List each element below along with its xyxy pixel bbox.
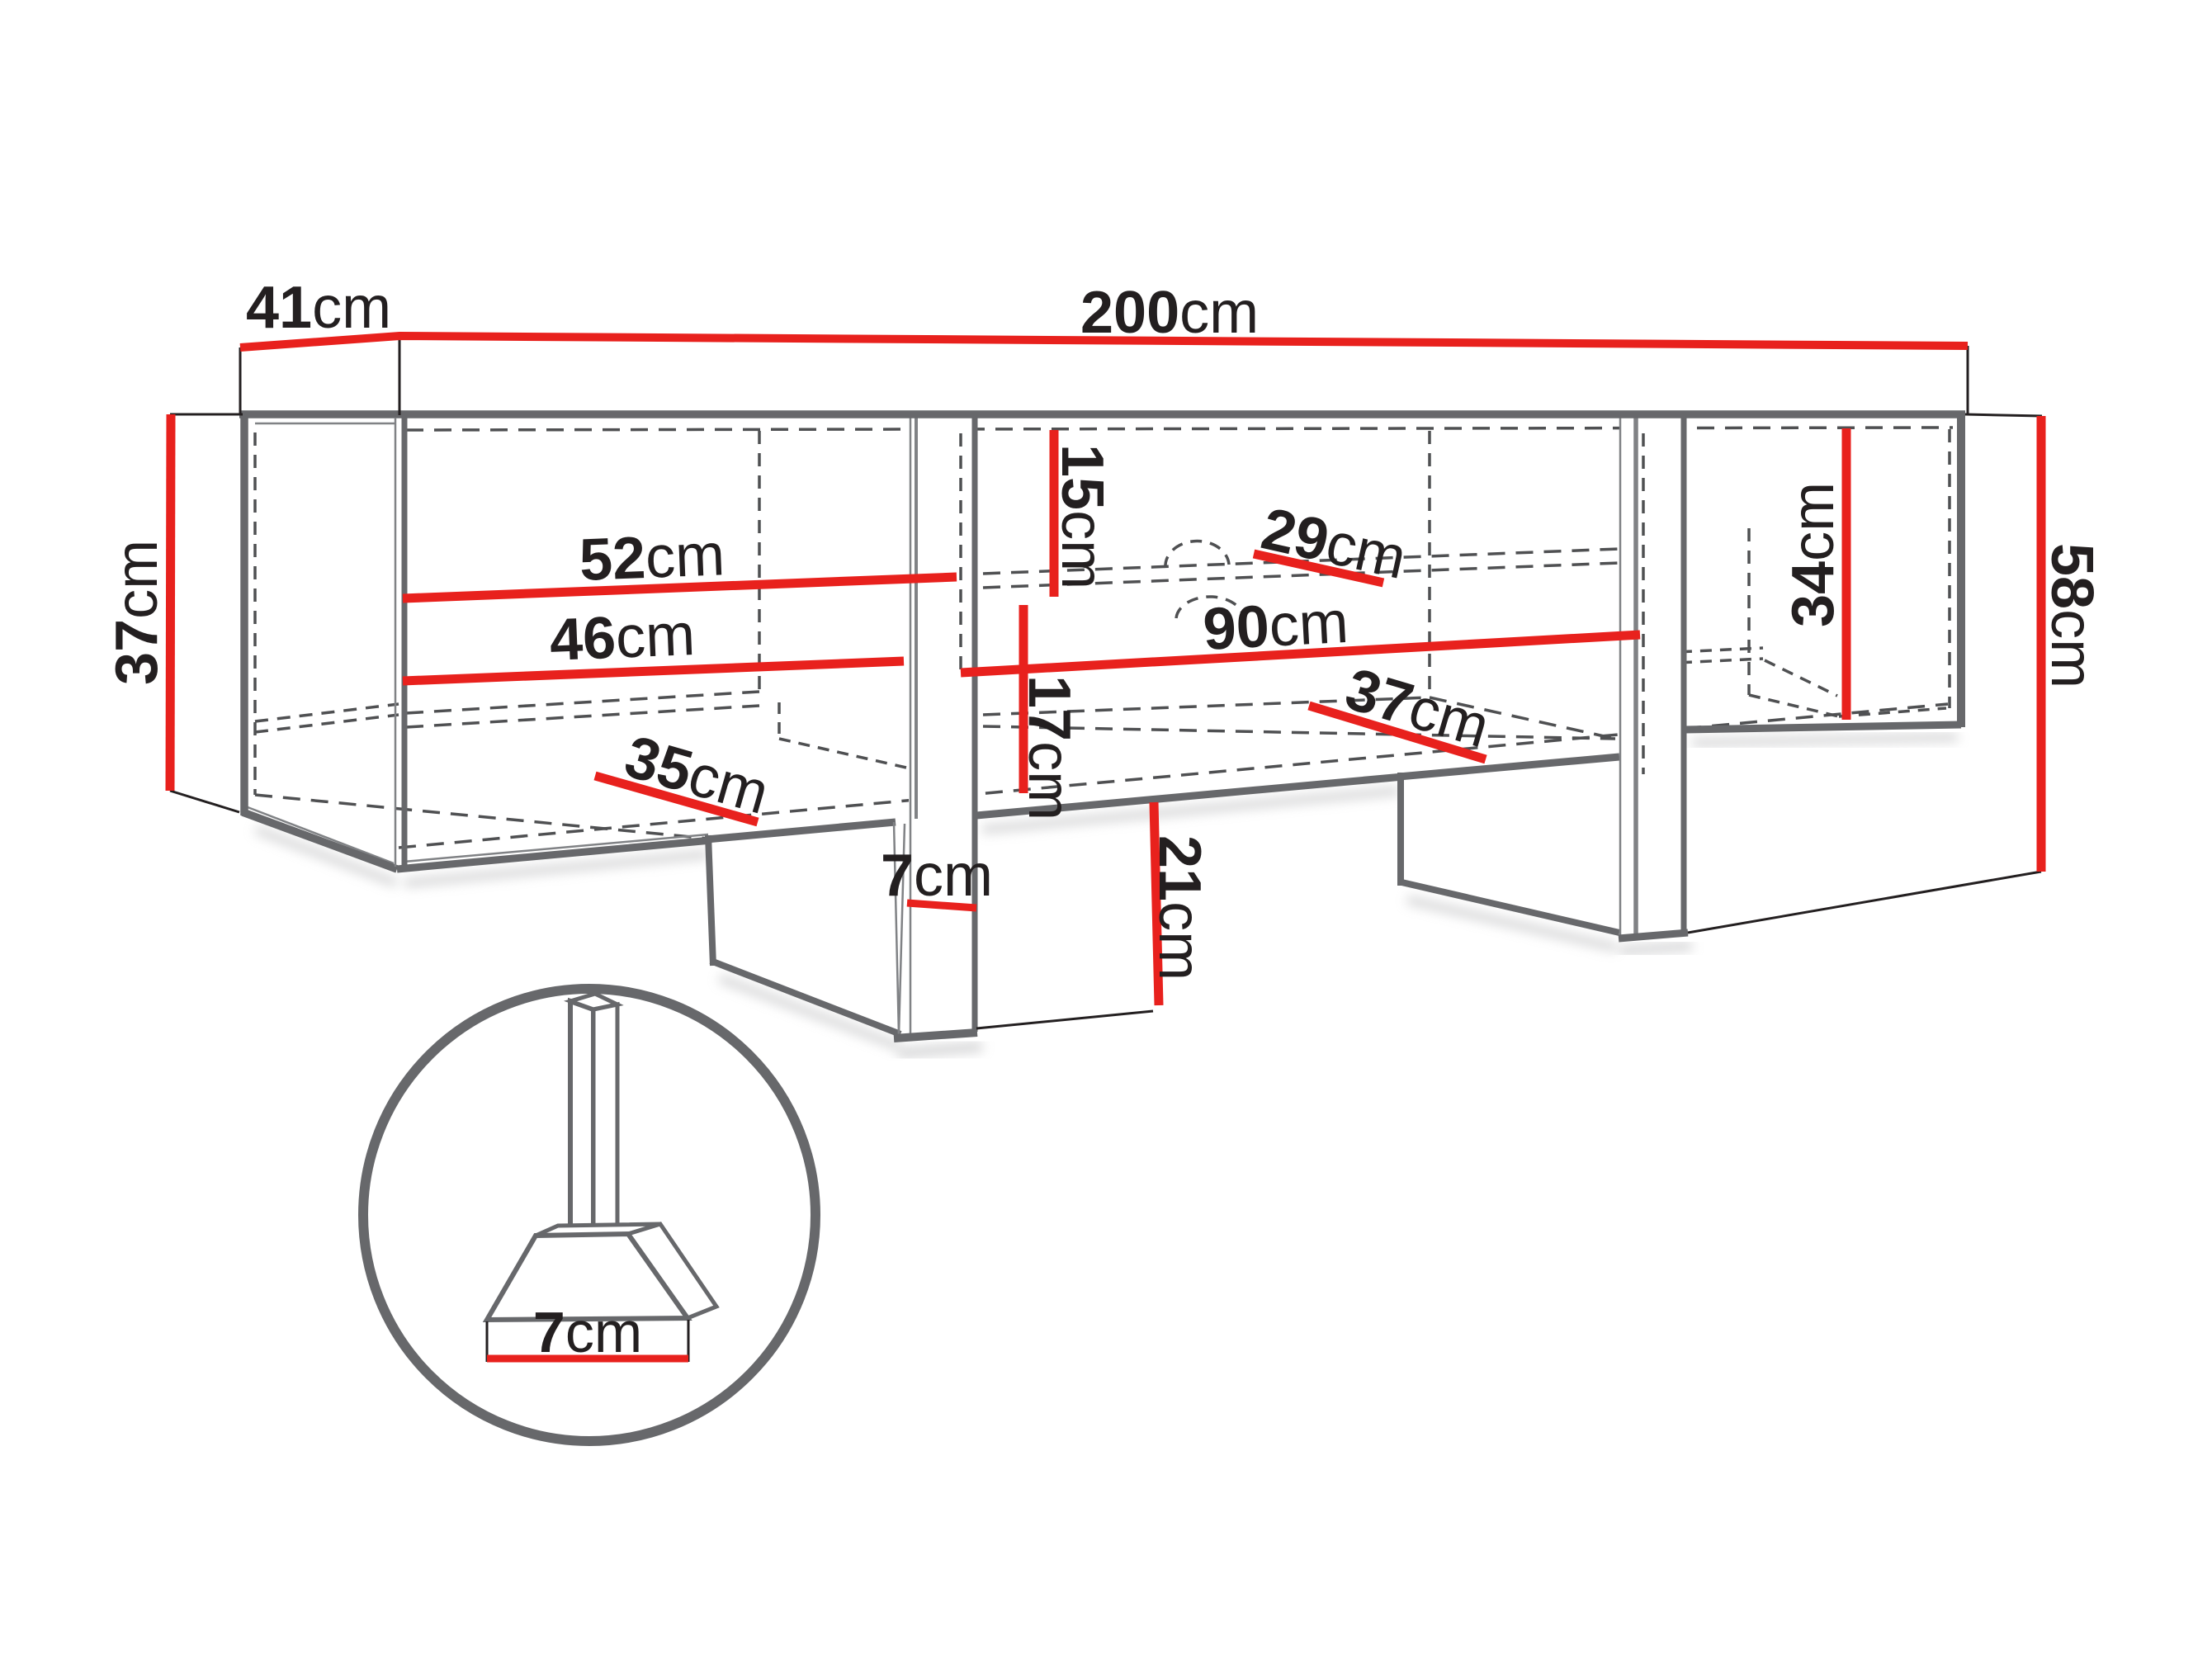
svg-text:41cm: 41cm bbox=[246, 275, 391, 341]
svg-text:90cm: 90cm bbox=[1202, 589, 1350, 663]
svg-text:58cm: 58cm bbox=[2039, 543, 2105, 688]
svg-text:52cm: 52cm bbox=[579, 522, 726, 593]
svg-text:34cm: 34cm bbox=[1780, 482, 1846, 627]
svg-text:21cm: 21cm bbox=[1146, 835, 1212, 981]
svg-text:17cm: 17cm bbox=[1016, 675, 1082, 820]
svg-text:15cm: 15cm bbox=[1049, 444, 1115, 589]
svg-text:46cm: 46cm bbox=[548, 602, 696, 674]
svg-text:7cm: 7cm bbox=[881, 843, 993, 909]
svg-text:7cm: 7cm bbox=[533, 1300, 642, 1364]
svg-text:37cm: 37cm bbox=[104, 540, 170, 685]
svg-text:200cm: 200cm bbox=[1080, 280, 1259, 346]
